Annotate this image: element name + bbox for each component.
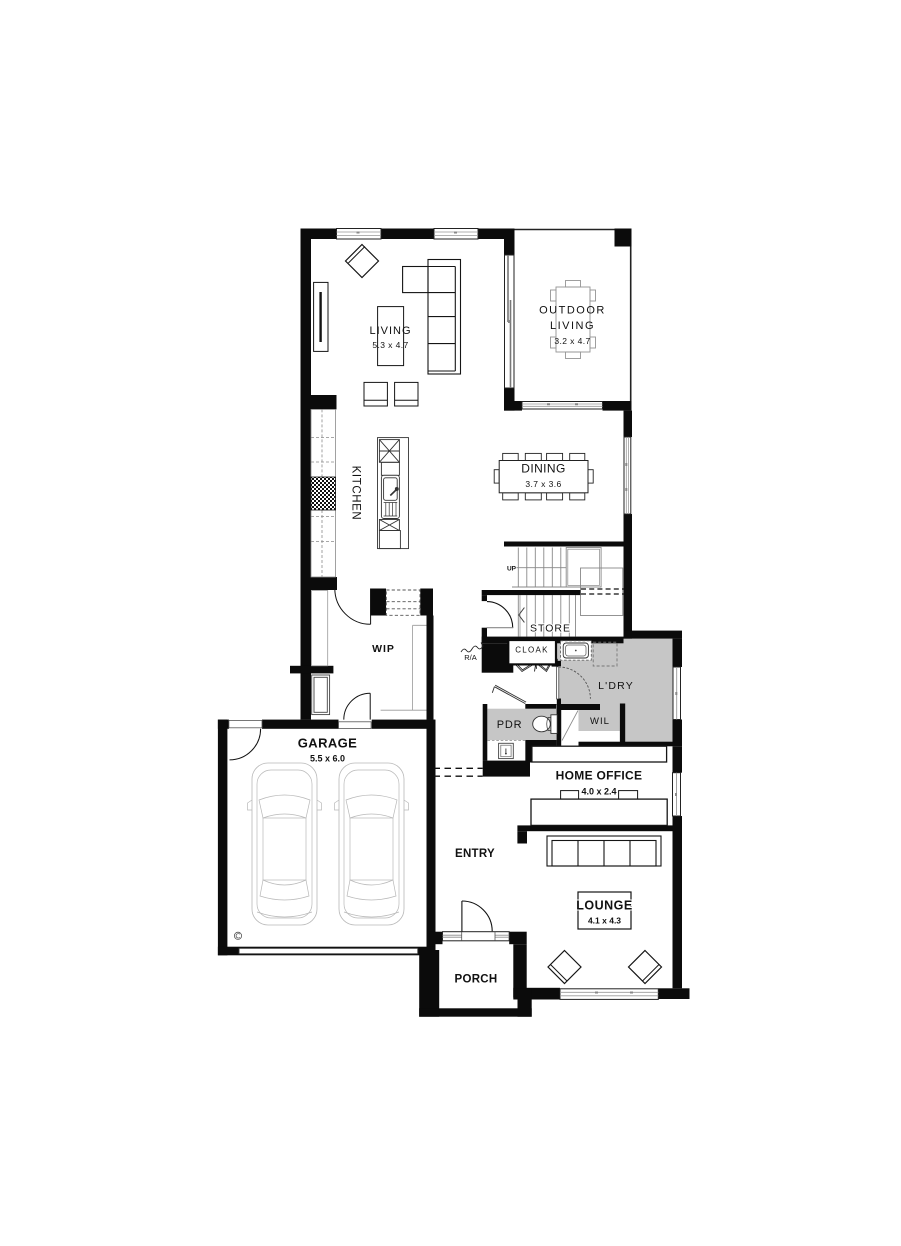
svg-text:STORE: STORE — [530, 623, 571, 635]
svg-text:3.2 x 4.7: 3.2 x 4.7 — [554, 336, 590, 346]
svg-text:CLOAK: CLOAK — [515, 646, 549, 655]
svg-text:R/A: R/A — [464, 653, 477, 662]
svg-text:L'DRY: L'DRY — [598, 680, 634, 692]
svg-text:LIVING: LIVING — [550, 320, 595, 332]
svg-text:DINING: DINING — [521, 462, 565, 476]
svg-text:5.5 x 6.0: 5.5 x 6.0 — [310, 754, 345, 764]
svg-text:UP: UP — [507, 566, 517, 573]
svg-text:WIL: WIL — [590, 716, 610, 727]
svg-text:LOUNGE: LOUNGE — [576, 899, 632, 913]
svg-text:HOME OFFICE: HOME OFFICE — [556, 769, 643, 783]
svg-text:GARAGE: GARAGE — [298, 736, 357, 751]
svg-text:4.1 x 4.3: 4.1 x 4.3 — [588, 916, 621, 926]
svg-text:OUTDOOR: OUTDOOR — [539, 305, 606, 317]
svg-text:ENTRY: ENTRY — [455, 848, 495, 860]
svg-text:KITCHEN: KITCHEN — [350, 466, 362, 521]
svg-text:PDR: PDR — [497, 719, 523, 731]
svg-text:5.3 x 4.7: 5.3 x 4.7 — [372, 340, 408, 350]
svg-text:LIVING: LIVING — [369, 325, 411, 337]
svg-text:WIP: WIP — [372, 643, 395, 655]
svg-text:PORCH: PORCH — [454, 974, 497, 986]
svg-text:4.0 x 2.4: 4.0 x 2.4 — [581, 787, 616, 797]
svg-text:3.7 x 3.6: 3.7 x 3.6 — [525, 479, 561, 489]
